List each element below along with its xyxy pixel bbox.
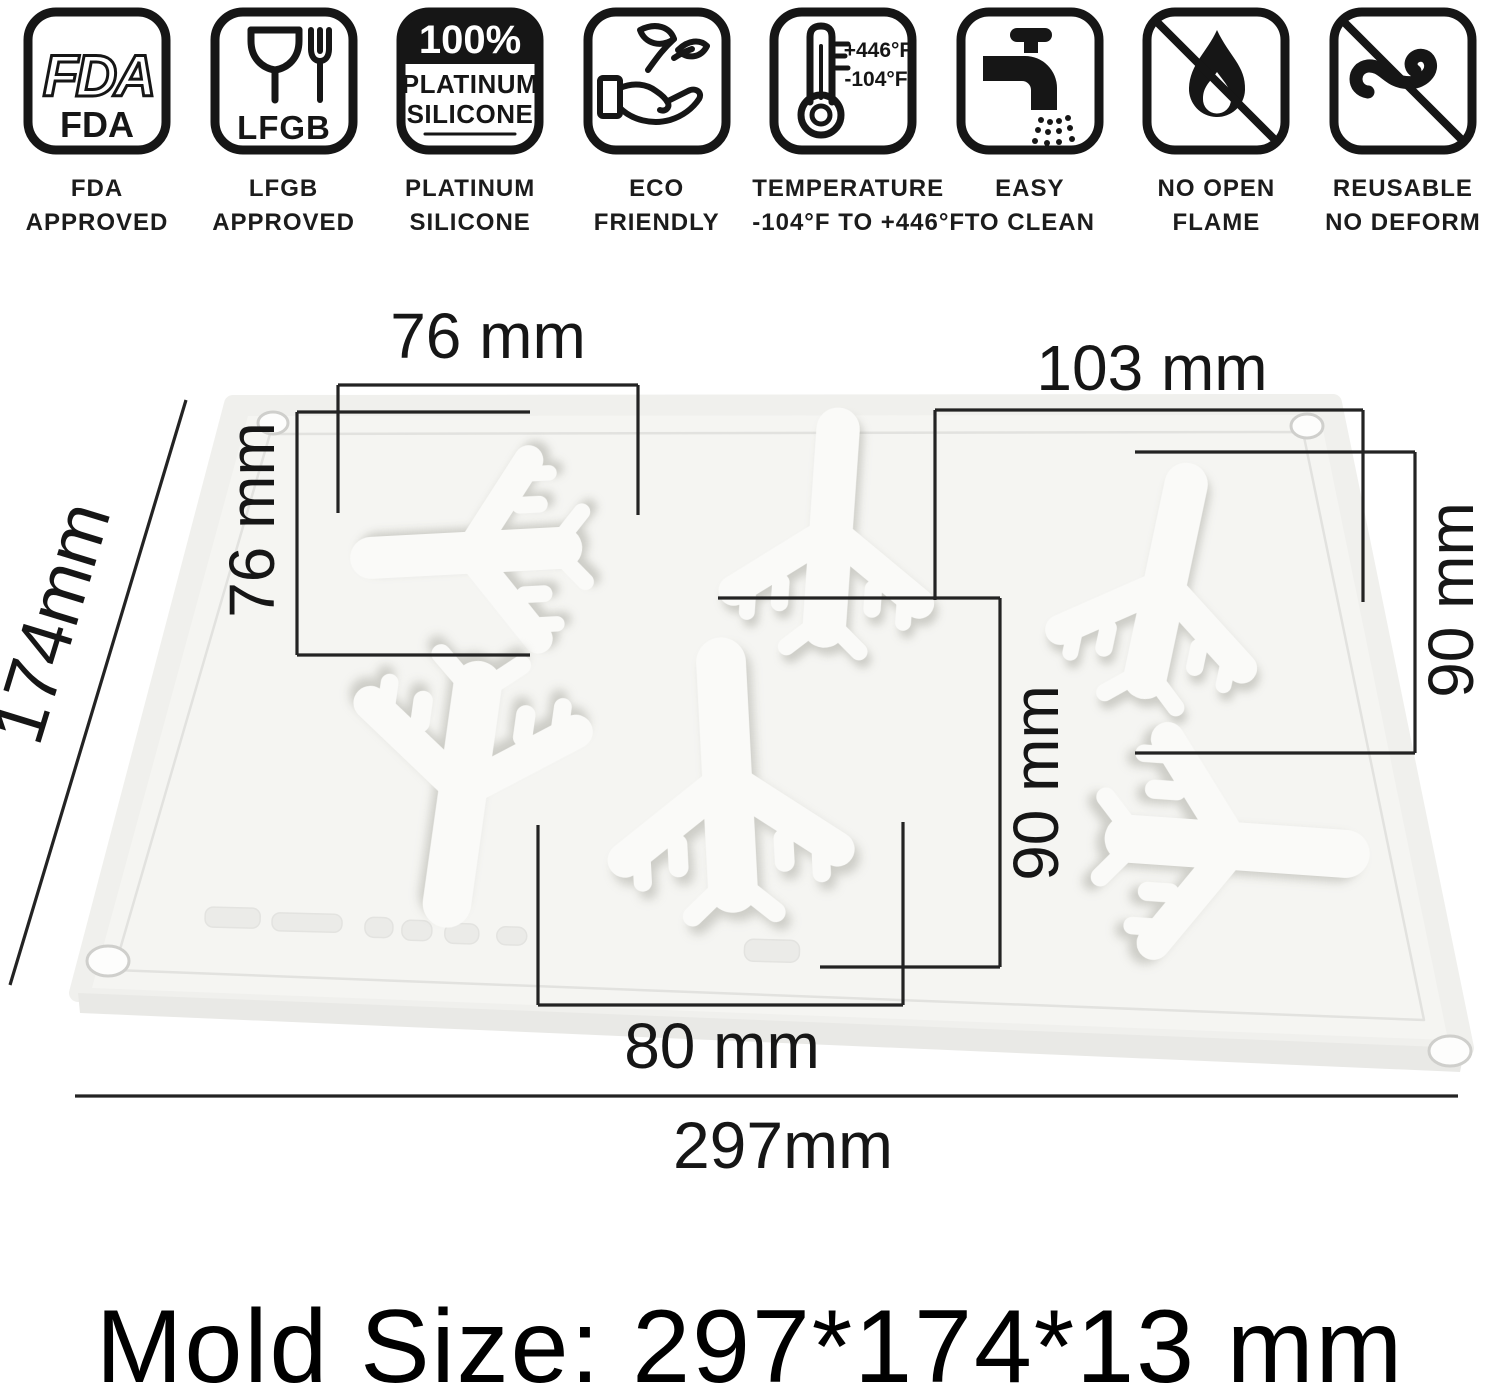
badge-label: EASY TO CLEAN xyxy=(939,172,1121,240)
percent-text: 100% xyxy=(419,18,521,62)
badge-label-line: FRIENDLY xyxy=(566,206,748,240)
fda-outline-text: FDA xyxy=(43,44,153,109)
mold-size-text: Mold Size: 297*174*13 mm xyxy=(0,1288,1500,1393)
badge-label-line: REUSABLE xyxy=(1312,172,1494,206)
badge-label-line: -104°F TO +446°F xyxy=(752,206,934,240)
faucet-clean-icon xyxy=(955,6,1105,156)
badge-label-line: PLATINUM xyxy=(379,172,561,206)
dimension-label: 90 mm xyxy=(1415,502,1487,698)
badge-eco-friendly: ECO FRIENDLY xyxy=(566,6,748,240)
badge-reusable-no-deform: REUSABLE NO DEFORM xyxy=(1312,6,1494,240)
thermometer-icon: +446°F -104°F xyxy=(768,6,918,156)
reusable-no-deform-icon xyxy=(1328,6,1478,156)
badge-platinum-silicone: 100% PLATINUM SILICONE PLATINUM SILICONE xyxy=(379,6,561,240)
badge-no-open-flame: NO OPEN FLAME xyxy=(1125,6,1307,240)
badge-label-line: FLAME xyxy=(1125,206,1307,240)
lfgb-text: LFGB xyxy=(237,109,331,146)
badge-label-line: NO OPEN xyxy=(1125,172,1307,206)
product-image-page: FDA FDA FDA APPROVED xyxy=(0,0,1500,1393)
screw-hole xyxy=(1291,414,1323,438)
badge-label-line: TEMPERATURE xyxy=(752,172,934,206)
badge-label-line: APPROVED xyxy=(6,206,188,240)
lfgb-glass-fork-icon: LFGB xyxy=(209,6,359,156)
badge-label-line: APPROVED xyxy=(193,206,375,240)
fda-solid-text: FDA xyxy=(60,104,134,145)
badge-fda-approved: FDA FDA FDA APPROVED xyxy=(6,6,188,240)
platinum-text: PLATINUM xyxy=(402,69,538,99)
screw-hole xyxy=(87,946,129,976)
badge-label: LFGB APPROVED xyxy=(193,172,375,240)
dimension-label: 76 mm xyxy=(390,300,586,372)
temp-high-text: +446°F xyxy=(844,39,913,62)
badge-label: NO OPEN FLAME xyxy=(1125,172,1307,240)
badge-lfgb-approved: LFGB LFGB APPROVED xyxy=(193,6,375,240)
badge-label-line: FDA xyxy=(6,172,188,206)
badge-label-line: SILICONE xyxy=(379,206,561,240)
platinum-silicone-badge-icon: 100% PLATINUM SILICONE xyxy=(395,6,545,156)
badge-label-line: NO DEFORM xyxy=(1312,206,1494,240)
fda-approved-icon: FDA FDA xyxy=(22,6,172,156)
dimension-label: 103 mm xyxy=(1036,332,1267,404)
dimension-label: 76 mm xyxy=(216,422,288,618)
dimension-label: 297mm xyxy=(673,1108,893,1182)
badge-temperature: +446°F -104°F TEMPERATURE -104°F TO +446… xyxy=(752,6,934,240)
badge-label: ECO FRIENDLY xyxy=(566,172,748,240)
eco-hand-leaf-icon xyxy=(582,6,732,156)
dimension-label: 80 mm xyxy=(624,1010,820,1082)
badge-label-line: LFGB xyxy=(193,172,375,206)
badge-label-line: TO CLEAN xyxy=(939,206,1121,240)
badge-label-line: ECO xyxy=(566,172,748,206)
badge-label: TEMPERATURE -104°F TO +446°F xyxy=(752,172,934,240)
badge-label: FDA APPROVED xyxy=(6,172,188,240)
dimension-label: 174mm xyxy=(0,492,126,752)
badge-label: REUSABLE NO DEFORM xyxy=(1312,172,1494,240)
no-open-flame-icon xyxy=(1141,6,1291,156)
badge-easy-to-clean: EASY TO CLEAN xyxy=(939,6,1121,240)
screw-hole xyxy=(1429,1036,1471,1066)
dimension-label: 90 mm xyxy=(1000,685,1072,881)
feature-badges-row: FDA FDA FDA APPROVED xyxy=(6,6,1494,240)
temp-low-text: -104°F xyxy=(845,68,908,91)
mold-dimension-diagram: 76 mm 76 mm 103 mm 90 mm 90 mm 80 mm 297… xyxy=(0,268,1500,1203)
silicone-text: SILICONE xyxy=(407,99,534,129)
badge-label: PLATINUM SILICONE xyxy=(379,172,561,240)
badge-label-line: EASY xyxy=(939,172,1121,206)
